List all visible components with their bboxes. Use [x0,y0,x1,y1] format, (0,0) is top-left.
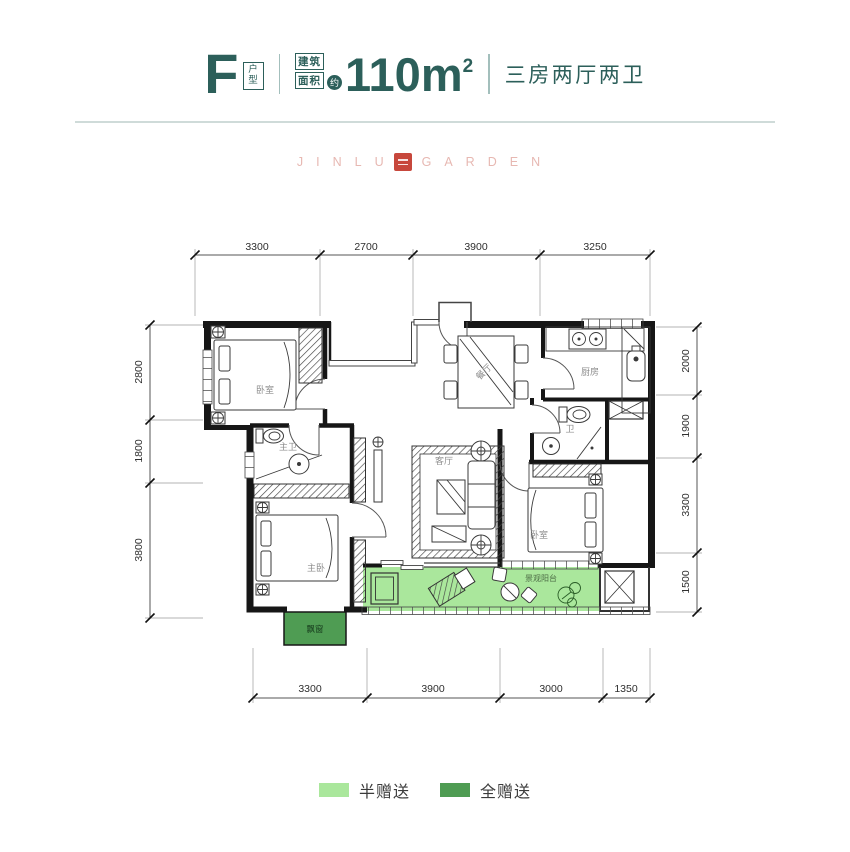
bedroom1-furniture [211,326,296,424]
bedroom1-wardrobe [299,328,322,383]
balcony-slider-door [401,566,423,570]
dimensions-top: 3300 2700 3900 3250 [191,241,655,316]
window-master-bath [245,452,254,478]
room-label-master-bath: 主卫 [279,441,297,452]
room-label-kitchen: 厨房 [581,366,599,377]
half-gift-label: 半赠送 [359,778,410,802]
full-gift-swatch [440,783,470,797]
dim-left-2: 1800 [133,439,145,463]
hall-cabinet [354,540,366,602]
balcony-railing [362,607,650,615]
dimensions-right: 2000 1900 3300 1500 [656,323,702,617]
balcony-slider-door [381,561,403,565]
half-gift-swatch [319,783,349,797]
dim-right-1: 2000 [680,349,692,373]
dim-bottom-4: 1350 [614,683,638,695]
hall-cabinet [354,438,366,502]
dim-left-3: 3800 [133,538,145,562]
dim-left-1: 2800 [133,360,145,384]
legend-item-half-gift: 半赠送 [319,778,410,802]
room-label-living: 客厅 [435,455,453,466]
dimensions-left: 2800 1800 3800 [133,321,203,623]
room-label-bedroom2: 卧室 [530,529,548,540]
room-label-master-bedroom: 主卧 [307,562,325,573]
full-gift-label: 全赠送 [480,778,531,802]
dim-right-2: 1900 [680,414,692,438]
room-label-bedroom1: 卧室 [256,384,274,395]
dimensions-bottom: 3300 3900 3000 1350 [249,648,655,703]
room-label-bay-window: 飘窗 [306,624,323,634]
dim-top-2: 2700 [354,241,378,253]
bedroom2-furniture [528,474,603,564]
dim-right-3: 3300 [680,493,692,517]
window-bedroom1 [203,350,212,404]
legend: 半赠送 全赠送 [0,778,850,802]
dim-top-4: 3250 [583,241,607,253]
master-bedroom-furniture [256,502,338,595]
floorplan-page: F 户型 建筑 面积 约 110m 2 三房两厅两卫 JINLU GARDEN [0,0,850,852]
window-bedroom2 [502,561,598,569]
room-label-bath2: 卫 [565,424,574,434]
dim-right-4: 1500 [680,570,692,594]
master-wardrobe [254,484,349,498]
dim-bottom-1: 3300 [298,683,322,695]
entry-alcove [439,303,471,323]
dim-bottom-3: 3000 [539,683,563,695]
dim-bottom-2: 3900 [421,683,445,695]
legend-item-full-gift: 全赠送 [440,778,531,802]
dim-top-1: 3300 [245,241,269,253]
floor-plan: 卧室 主卫 餐厅 厨房 卫 客厅 主卧 卧室 景观阳台 飘窗 3300 2700… [0,0,850,852]
room-label-balcony: 景观阳台 [525,573,557,583]
dim-top-3: 3900 [464,241,488,253]
